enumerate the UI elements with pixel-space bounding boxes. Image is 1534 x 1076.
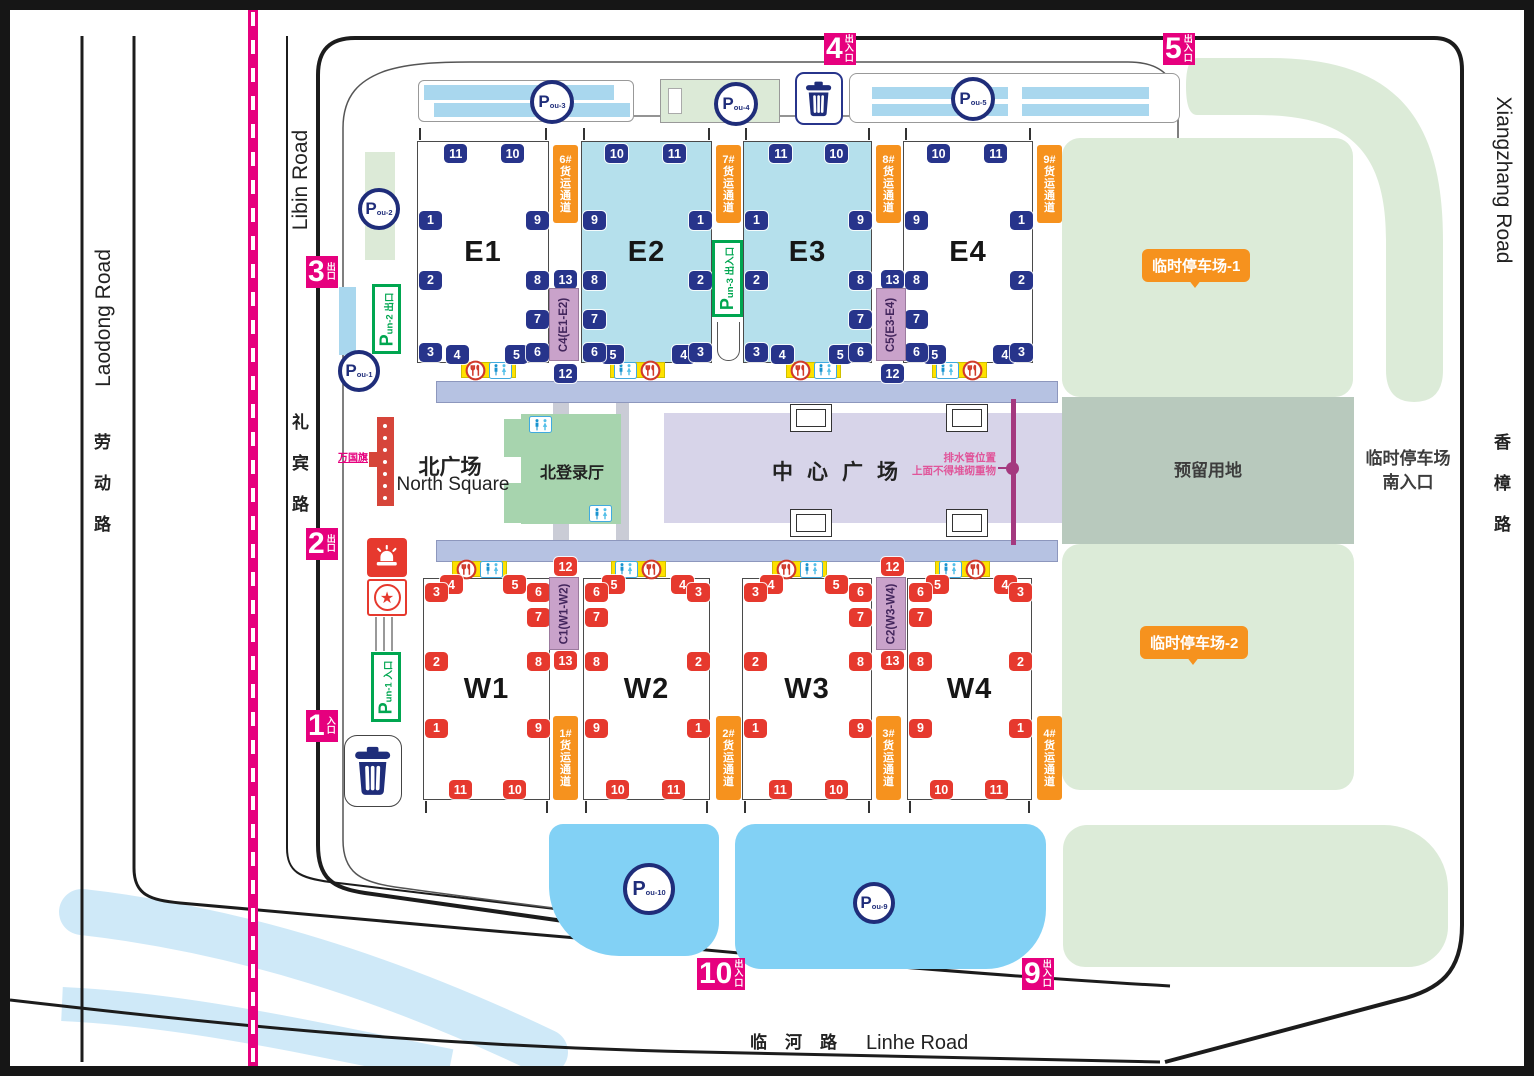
parking-circle-Pou-5: Pou-5 bbox=[951, 77, 995, 121]
entrance-suffix: 出口 bbox=[327, 535, 336, 554]
restaurant-icon bbox=[962, 360, 983, 381]
road-char: 樟 bbox=[1494, 469, 1511, 494]
p-sub: ou-10 bbox=[646, 888, 666, 897]
gate-badge-4: 4 bbox=[771, 345, 794, 364]
gate-badge-3: 3 bbox=[689, 343, 712, 362]
gate-badge-1: 1 bbox=[689, 211, 712, 230]
hall-tick bbox=[744, 801, 746, 813]
road-char: 礼 bbox=[292, 408, 309, 433]
north-hall-label: 北登录厅 bbox=[524, 459, 620, 483]
lane-char: 运 bbox=[723, 178, 734, 190]
gate-badge-12: 12 bbox=[881, 557, 904, 576]
p-letter: P bbox=[722, 94, 733, 114]
flag-dot bbox=[383, 472, 387, 476]
bus-platform-mid-notch bbox=[668, 88, 682, 114]
flag-pole bbox=[391, 617, 393, 651]
hall-label-E1: E1 bbox=[464, 236, 501, 269]
gate-badge-11: 11 bbox=[444, 144, 467, 163]
road-linhe-zh: 临河路 bbox=[750, 1028, 855, 1053]
gate-badge-3: 3 bbox=[744, 583, 767, 602]
gate-badge-10: 10 bbox=[501, 144, 524, 163]
gate-badge-6: 6 bbox=[905, 343, 928, 362]
gate-badge-12: 12 bbox=[554, 364, 577, 383]
drain-note-line2: 上面不得堆砌重物 bbox=[862, 465, 996, 478]
freight-lane-lane9: 9#货运通道 bbox=[1037, 145, 1062, 223]
gate-badge-3: 3 bbox=[425, 583, 448, 602]
gate-badge-9: 9 bbox=[909, 719, 932, 738]
entrance-2: 2出口 bbox=[306, 528, 338, 560]
hall-E3: E3 bbox=[743, 141, 872, 363]
lane-char: 货 bbox=[1044, 166, 1055, 178]
lane-char: 道 bbox=[1044, 202, 1055, 214]
stair-box bbox=[790, 404, 832, 432]
lane-char: 运 bbox=[883, 752, 894, 764]
male-icon bbox=[940, 364, 946, 376]
restaurant-icon bbox=[641, 559, 662, 580]
gate-badge-1: 1 bbox=[425, 719, 448, 738]
hall-tick bbox=[585, 801, 587, 813]
lane-char: 运 bbox=[560, 752, 571, 764]
gate-badge-7: 7 bbox=[849, 310, 872, 329]
male-icon bbox=[485, 563, 491, 575]
toilet-icon bbox=[814, 362, 837, 379]
p-sub: ou-2 bbox=[377, 208, 393, 217]
gate-badge-12: 12 bbox=[881, 364, 904, 383]
stair-box bbox=[946, 404, 988, 432]
gate-badge-2: 2 bbox=[689, 271, 712, 290]
flag-dot bbox=[383, 484, 387, 488]
gate-badge-6: 6 bbox=[527, 583, 550, 602]
gate-badge-2: 2 bbox=[1009, 652, 1032, 671]
entrance-9: 9出入口 bbox=[1022, 958, 1054, 990]
stair-inner bbox=[952, 514, 982, 532]
gate-badge-6: 6 bbox=[849, 583, 872, 602]
p-sub: ou-5 bbox=[971, 98, 987, 107]
area-parking-2 bbox=[1062, 544, 1354, 790]
road-xiangzhang-en: Xiangzhang Road bbox=[1491, 70, 1515, 290]
lane-char: 运 bbox=[1044, 178, 1055, 190]
freight-lane-lane4: 4#货运通道 bbox=[1037, 716, 1062, 800]
flag-pole bbox=[375, 617, 377, 651]
gate-badge-11: 11 bbox=[985, 780, 1008, 799]
gate-badge-10: 10 bbox=[503, 780, 526, 799]
gate-badge-11: 11 bbox=[449, 780, 472, 799]
pun-label: Pun-1 入口 bbox=[376, 660, 397, 714]
gate-badge-10: 10 bbox=[825, 780, 848, 799]
hall-tick bbox=[546, 801, 548, 813]
gate-badge-3: 3 bbox=[419, 343, 442, 362]
female-icon bbox=[542, 419, 548, 431]
lane-char: 通 bbox=[560, 190, 571, 202]
freight-lane-lane2: 2#货运通道 bbox=[716, 716, 741, 800]
lane-number: 8# bbox=[882, 154, 894, 166]
gate-badge-6: 6 bbox=[526, 343, 549, 362]
hall-tick bbox=[419, 128, 421, 140]
star-icon: ★ bbox=[374, 584, 401, 611]
entrance-suffix: 入口 bbox=[327, 717, 336, 736]
gate-badge-7: 7 bbox=[849, 608, 872, 627]
toilet-icon bbox=[589, 505, 612, 522]
entrance-4: 4出入口 bbox=[824, 33, 856, 65]
alarm-icon-box bbox=[367, 538, 407, 577]
gate-badge-4: 4 bbox=[446, 345, 469, 364]
female-icon bbox=[626, 364, 632, 376]
p-letter: P bbox=[538, 92, 549, 112]
corridor-label: C4(E1-E2) bbox=[558, 297, 570, 351]
entrance-suffix: 出入口 bbox=[1043, 960, 1052, 989]
lane-number: 7# bbox=[722, 154, 734, 166]
gate-badge-6: 6 bbox=[909, 583, 932, 602]
road-char: 动 bbox=[94, 469, 111, 494]
gate-badge-11: 11 bbox=[769, 144, 792, 163]
lane-char: 通 bbox=[723, 764, 734, 776]
road-laodong-zh: 劳动路 bbox=[94, 428, 111, 535]
restaurant-icon bbox=[640, 360, 661, 381]
entrance-number: 5 bbox=[1165, 34, 1182, 64]
gate-badge-9: 9 bbox=[905, 211, 928, 230]
hall-label-W4: W4 bbox=[947, 673, 993, 706]
gate-badge-8: 8 bbox=[849, 271, 872, 290]
gate-badge-8: 8 bbox=[585, 652, 608, 671]
hall-E2: E2 bbox=[581, 141, 712, 363]
freight-lane-lane7: 7#货运通道 bbox=[716, 145, 741, 223]
lane-char: 通 bbox=[560, 764, 571, 776]
trash-icon bbox=[803, 81, 834, 117]
gate-badge-9: 9 bbox=[849, 719, 872, 738]
south-entrance-line1: 临时停车场 bbox=[1352, 447, 1464, 471]
hall-tick bbox=[745, 128, 747, 140]
gate-badge-7: 7 bbox=[905, 310, 928, 329]
gate-badge-13: 13 bbox=[881, 270, 904, 289]
drain-note-connector bbox=[998, 467, 1008, 469]
male-icon bbox=[534, 419, 540, 431]
male-icon bbox=[493, 364, 499, 376]
lane-number: 4# bbox=[1043, 728, 1055, 740]
lane-char: 道 bbox=[1044, 776, 1055, 788]
gate-badge-1: 1 bbox=[745, 211, 768, 230]
gate-badge-2: 2 bbox=[425, 652, 448, 671]
gate-badge-11: 11 bbox=[984, 144, 1007, 163]
entrance-number: 3 bbox=[308, 257, 325, 287]
corridor-C2: C2(W3-W4) bbox=[876, 577, 906, 650]
north-square-label-en: North Square bbox=[378, 474, 528, 496]
gate-badge-9: 9 bbox=[849, 211, 872, 230]
lane-char: 货 bbox=[883, 166, 894, 178]
p-letter: P bbox=[632, 878, 645, 901]
flags-label: 万国旗 bbox=[338, 449, 368, 464]
stair-inner bbox=[796, 409, 826, 427]
lane-char: 运 bbox=[1044, 752, 1055, 764]
restaurant-icon bbox=[965, 559, 986, 580]
gate-badge-9: 9 bbox=[583, 211, 606, 230]
gate-badge-5: 5 bbox=[503, 575, 526, 594]
gate-badge-7: 7 bbox=[583, 310, 606, 329]
corridor-label: C2(W3-W4) bbox=[885, 583, 897, 644]
entrance-suffix: 出入口 bbox=[734, 960, 743, 989]
service-strip-E2 bbox=[610, 362, 665, 378]
female-icon bbox=[826, 364, 832, 376]
south-entrance-line2: 南入口 bbox=[1352, 471, 1464, 495]
parking-gate-Pun-1: Pun-1 入口 bbox=[371, 652, 401, 722]
parking-gate-Pun-3: Pun-3 出入口 bbox=[712, 240, 743, 317]
road-char: 路 bbox=[94, 510, 111, 535]
road-char: 路 bbox=[1494, 510, 1511, 535]
lane-char: 通 bbox=[1044, 190, 1055, 202]
freight-lane-lane1: 1#货运通道 bbox=[553, 716, 578, 800]
road-laodong-en: Laodong Road bbox=[92, 208, 116, 428]
lane-number: 2# bbox=[722, 728, 734, 740]
road-char: 香 bbox=[1494, 428, 1511, 453]
freight-lane-lane6: 6#货运通道 bbox=[553, 145, 578, 223]
hall-E1: E1 bbox=[417, 141, 549, 363]
gate-badge-3: 3 bbox=[1010, 343, 1033, 362]
p-letter: P bbox=[365, 199, 376, 219]
gate-badge-11: 11 bbox=[663, 144, 686, 163]
drain-note-line1: 排水管位置 bbox=[862, 452, 996, 465]
lane-char: 道 bbox=[560, 776, 571, 788]
hall-tick bbox=[545, 128, 547, 140]
gate-badge-13: 13 bbox=[554, 651, 577, 670]
gate-badge-3: 3 bbox=[1009, 583, 1032, 602]
p-letter: P bbox=[345, 361, 356, 381]
entrance-3: 3出口 bbox=[306, 256, 338, 288]
female-icon bbox=[951, 563, 957, 575]
hall-label-W1: W1 bbox=[464, 673, 510, 706]
entrance-5: 5出入口 bbox=[1163, 33, 1195, 65]
lane-char: 货 bbox=[1044, 740, 1055, 752]
female-icon bbox=[627, 563, 633, 575]
parking1-callout: 临时停车场-1 bbox=[1142, 249, 1250, 282]
corridor-C1: C1(W1-W2) bbox=[549, 577, 579, 650]
hall-tick bbox=[868, 128, 870, 140]
road-char: 劳 bbox=[94, 428, 111, 453]
gate-badge-6: 6 bbox=[849, 343, 872, 362]
gate-badge-1: 1 bbox=[1010, 211, 1033, 230]
lane-char: 运 bbox=[723, 752, 734, 764]
lane-char: 道 bbox=[723, 202, 734, 214]
flag-dot bbox=[383, 460, 387, 464]
p-sub: ou-9 bbox=[872, 902, 888, 911]
bus-strip-gap bbox=[1008, 85, 1022, 119]
gate-badge-10: 10 bbox=[605, 144, 628, 163]
lane-char: 通 bbox=[883, 190, 894, 202]
gate-badge-13: 13 bbox=[554, 270, 577, 289]
gate-badge-7: 7 bbox=[527, 608, 550, 627]
north-hall-tab-top bbox=[504, 419, 522, 457]
gate-badge-1: 1 bbox=[1009, 719, 1032, 738]
toilet-icon bbox=[614, 362, 637, 379]
male-icon bbox=[619, 563, 625, 575]
corridor-C5: C5(E3-E4) bbox=[876, 288, 906, 361]
p-sub: ou-1 bbox=[357, 370, 373, 379]
gate-badge-11: 11 bbox=[769, 780, 792, 799]
lane-char: 货 bbox=[723, 166, 734, 178]
female-icon bbox=[501, 364, 507, 376]
gate-badge-7: 7 bbox=[909, 608, 932, 627]
hall-tick bbox=[706, 801, 708, 813]
toilet-icon bbox=[936, 362, 959, 379]
entrance-10: 10出入口 bbox=[697, 958, 745, 990]
female-icon bbox=[812, 563, 818, 575]
p-letter: P bbox=[959, 89, 970, 109]
male-icon bbox=[618, 364, 624, 376]
hall-tick bbox=[1028, 801, 1030, 813]
lane-char: 货 bbox=[723, 740, 734, 752]
corridor-label: C5(E3-E4) bbox=[885, 297, 897, 351]
gate-badge-6: 6 bbox=[583, 343, 606, 362]
parking-circle-Pou-9: Pou-9 bbox=[853, 882, 895, 924]
gate-badge-7: 7 bbox=[585, 608, 608, 627]
pun3-door bbox=[717, 322, 740, 361]
gate-badge-3: 3 bbox=[687, 583, 710, 602]
corridor-label: C1(W1-W2) bbox=[558, 583, 570, 644]
toilet-icon bbox=[480, 561, 503, 578]
gate-badge-2: 2 bbox=[745, 271, 768, 290]
corridor-C4: C4(E1-E2) bbox=[549, 288, 579, 361]
gate-badge-8: 8 bbox=[905, 271, 928, 290]
stair-inner bbox=[796, 514, 826, 532]
green-band-bottom bbox=[1063, 825, 1448, 967]
flags-strip-tab bbox=[369, 452, 378, 467]
entrance-number: 2 bbox=[308, 529, 325, 559]
lane-char: 道 bbox=[883, 776, 894, 788]
gate-badge-1: 1 bbox=[419, 211, 442, 230]
walkway-bar-north bbox=[436, 381, 1058, 403]
hall-tick bbox=[583, 128, 585, 140]
trash-station-south bbox=[344, 735, 402, 807]
entrance-number: 9 bbox=[1024, 959, 1041, 989]
male-icon bbox=[818, 364, 824, 376]
gate-badge-2: 2 bbox=[1010, 271, 1033, 290]
gate-badge-5: 5 bbox=[825, 575, 848, 594]
hall-E4: E4 bbox=[903, 141, 1033, 363]
service-strip-E1 bbox=[461, 362, 516, 378]
p-letter: P bbox=[860, 893, 871, 913]
lane-char: 货 bbox=[883, 740, 894, 752]
gate-badge-5: 5 bbox=[505, 345, 528, 364]
male-icon bbox=[594, 508, 600, 520]
south-entrance-label: 临时停车场 南入口 bbox=[1352, 447, 1464, 495]
male-icon bbox=[804, 563, 810, 575]
gate-badge-8: 8 bbox=[909, 652, 932, 671]
expo-venue-map: 北登录厅 中心广场 预留用地 临时停车场-1 临时停车场-2 临时停车场 南入口… bbox=[0, 0, 1534, 1076]
hall-tick bbox=[1029, 128, 1031, 140]
lane-number: 1# bbox=[559, 728, 571, 740]
gate-badge-7: 7 bbox=[526, 310, 549, 329]
lane-char: 道 bbox=[560, 202, 571, 214]
hall-tick bbox=[909, 801, 911, 813]
hall-tick bbox=[868, 801, 870, 813]
gate-badge-10: 10 bbox=[825, 144, 848, 163]
entrance-suffix: 出入口 bbox=[845, 35, 854, 64]
parking-gate-Pun-2: Pun-2 出口 bbox=[372, 284, 401, 354]
hall-tick bbox=[905, 128, 907, 140]
stair-inner bbox=[952, 409, 982, 427]
trash-station-top bbox=[795, 72, 843, 125]
p-sub: ou-3 bbox=[550, 101, 566, 110]
gate-badge-9: 9 bbox=[585, 719, 608, 738]
gate-badge-10: 10 bbox=[930, 780, 953, 799]
female-icon bbox=[948, 364, 954, 376]
lane-number: 6# bbox=[559, 154, 571, 166]
drain-note: 排水管位置 上面不得堆砌重物 bbox=[862, 452, 996, 478]
gate-badge-10: 10 bbox=[927, 144, 950, 163]
pun-label: Pun-2 出口 bbox=[376, 292, 397, 346]
hall-label-E2: E2 bbox=[628, 236, 665, 269]
trash-icon bbox=[351, 746, 394, 796]
blue-stop-pun2 bbox=[339, 287, 356, 355]
lane-char: 通 bbox=[1044, 764, 1055, 776]
entrance-suffix: 出口 bbox=[327, 263, 336, 282]
flag-dot bbox=[383, 496, 387, 500]
road-libin-zh: 礼宾路 bbox=[292, 408, 309, 515]
siren-icon bbox=[372, 545, 402, 570]
entrance-suffix: 出入口 bbox=[1184, 35, 1193, 64]
lane-char: 通 bbox=[883, 764, 894, 776]
flag-dot bbox=[383, 436, 387, 440]
gate-badge-8: 8 bbox=[583, 271, 606, 290]
male-icon bbox=[943, 563, 949, 575]
gate-badge-9: 9 bbox=[526, 211, 549, 230]
star-emblem-box: ★ bbox=[367, 579, 407, 616]
hall-tick bbox=[708, 128, 710, 140]
gate-badge-10: 10 bbox=[606, 780, 629, 799]
female-icon bbox=[602, 508, 608, 520]
flag-dot bbox=[383, 448, 387, 452]
gate-badge-6: 6 bbox=[585, 583, 608, 602]
bus-strip bbox=[424, 85, 614, 100]
gate-badge-2: 2 bbox=[419, 271, 442, 290]
p-sub: ou-4 bbox=[734, 103, 750, 112]
stair-box bbox=[946, 509, 988, 537]
lane-number: 3# bbox=[882, 728, 894, 740]
hall-label-W3: W3 bbox=[784, 673, 830, 706]
parking-circle-Pou-4: Pou-4 bbox=[714, 82, 758, 126]
gate-badge-9: 9 bbox=[527, 719, 550, 738]
hall-label-W2: W2 bbox=[624, 673, 670, 706]
lane-char: 通 bbox=[723, 190, 734, 202]
gate-badge-8: 8 bbox=[849, 652, 872, 671]
road-linhe-en: Linhe Road bbox=[866, 1032, 968, 1055]
freight-lane-lane3: 3#货运通道 bbox=[876, 716, 901, 800]
lane-char: 道 bbox=[883, 202, 894, 214]
parking-circle-Pou-3: Pou-3 bbox=[530, 80, 574, 124]
entrance-number: 1 bbox=[308, 711, 325, 741]
toilet-icon bbox=[489, 362, 512, 379]
flag-dot bbox=[383, 424, 387, 428]
female-icon bbox=[493, 563, 499, 575]
gate-badge-13: 13 bbox=[881, 651, 904, 670]
lane-char: 道 bbox=[723, 776, 734, 788]
lane-number: 9# bbox=[1043, 154, 1055, 166]
road-xiangzhang-zh: 香樟路 bbox=[1494, 428, 1511, 535]
gate-badge-8: 8 bbox=[527, 652, 550, 671]
gate-badge-8: 8 bbox=[526, 271, 549, 290]
hall-label-E4: E4 bbox=[949, 236, 986, 269]
lane-char: 运 bbox=[883, 178, 894, 190]
gate-badge-1: 1 bbox=[744, 719, 767, 738]
reserved-label: 预留用地 bbox=[1128, 456, 1288, 481]
entrance-number: 10 bbox=[699, 959, 732, 989]
parking-circle-Pou-1: Pou-1 bbox=[338, 350, 380, 392]
freight-lane-lane8: 8#货运通道 bbox=[876, 145, 901, 223]
hall-tick bbox=[425, 801, 427, 813]
lane-char: 货 bbox=[560, 166, 571, 178]
entrance-1: 1入口 bbox=[306, 710, 338, 742]
gate-badge-2: 2 bbox=[687, 652, 710, 671]
pun-label: Pun-3 出入口 bbox=[717, 247, 738, 310]
road-char: 路 bbox=[292, 490, 309, 515]
